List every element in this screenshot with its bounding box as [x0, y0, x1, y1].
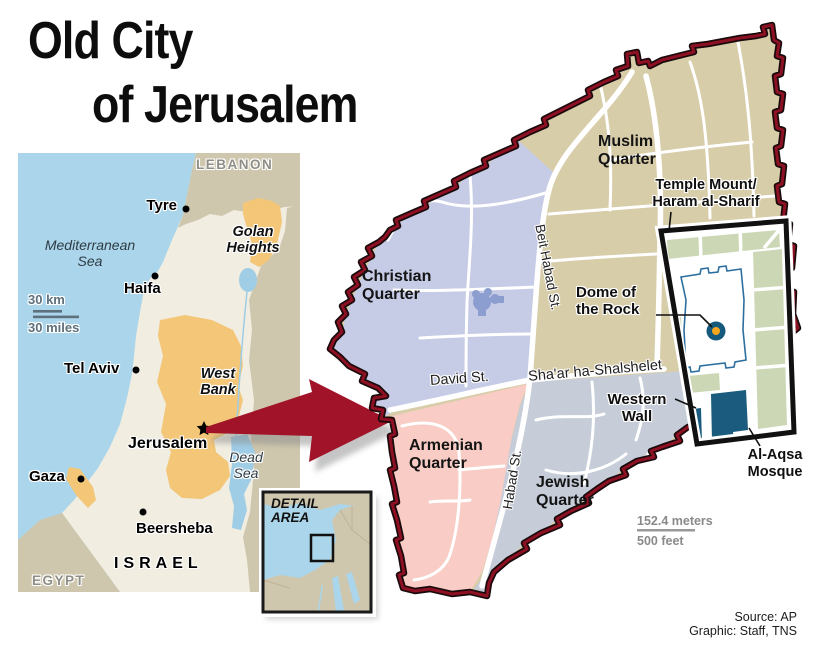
label-dome-of-the-rock: Dome of the Rock	[576, 284, 660, 319]
credit-source: Source: AP	[734, 610, 797, 624]
label-jerusalem: Jerusalem	[128, 435, 207, 453]
label-beersheba: Beersheba	[136, 521, 213, 538]
label-golan-heights: Golan Heights	[220, 224, 286, 256]
tel-aviv-dot	[133, 367, 140, 374]
meters-scale-bar	[637, 529, 695, 532]
label-scale-meters: 152.4 meters	[637, 514, 713, 528]
sea-of-galilee	[239, 268, 257, 292]
page-title-line1: Old City	[28, 12, 193, 70]
dome-platform	[681, 266, 746, 372]
miles-scale-bar	[33, 316, 79, 319]
label-israel: ISRAEL	[114, 555, 203, 573]
label-detail-area: DETAIL AREA	[271, 497, 335, 525]
label-mediterranean-sea: Mediterranean Sea	[34, 238, 146, 269]
label-haifa: Haifa	[124, 281, 161, 298]
label-christian-quarter: Christian Quarter	[362, 268, 450, 304]
km-scale-bar	[33, 310, 62, 313]
label-western-wall: Western Wall	[598, 391, 676, 426]
dome-gold-icon	[712, 327, 720, 335]
label-temple-mount-line1: Temple Mount/	[640, 177, 772, 194]
label-dead-sea: Dead Sea	[220, 450, 272, 481]
beersheba-dot	[140, 509, 147, 516]
label-scale-feet: 500 feet	[637, 534, 684, 548]
label-scale-km: 30 km	[28, 293, 65, 308]
label-al-aqsa-mosque: Al-Aqsa Mosque	[738, 447, 812, 480]
label-gaza: Gaza	[29, 469, 65, 486]
label-tel-aviv: Tel Aviv	[64, 361, 119, 378]
haifa-dot	[152, 273, 159, 280]
label-egypt: EGYPT	[32, 573, 85, 588]
label-scale-miles: 30 miles	[28, 321, 79, 336]
label-armenian-quarter: Armenian Quarter	[409, 437, 501, 473]
label-lebanon: LEBANON	[196, 157, 273, 172]
page-title-line2: of Jerusalem	[92, 76, 358, 134]
gaza-dot	[78, 476, 85, 483]
news-graphic: Old City of Jerusalem LEBANON Tyre Medit…	[0, 0, 823, 650]
label-west-bank: West Bank	[186, 366, 250, 398]
label-muslim-quarter: Muslim Quarter	[598, 133, 670, 169]
label-temple-mount-line2: Haram al-Sharif	[640, 194, 772, 211]
credit-graphic: Graphic: Staff, TNS	[689, 624, 797, 638]
tyre-dot	[183, 206, 190, 213]
label-jewish-quarter: Jewish Quarter	[536, 474, 606, 510]
old-city-map	[330, 25, 798, 596]
label-tyre: Tyre	[133, 198, 177, 215]
